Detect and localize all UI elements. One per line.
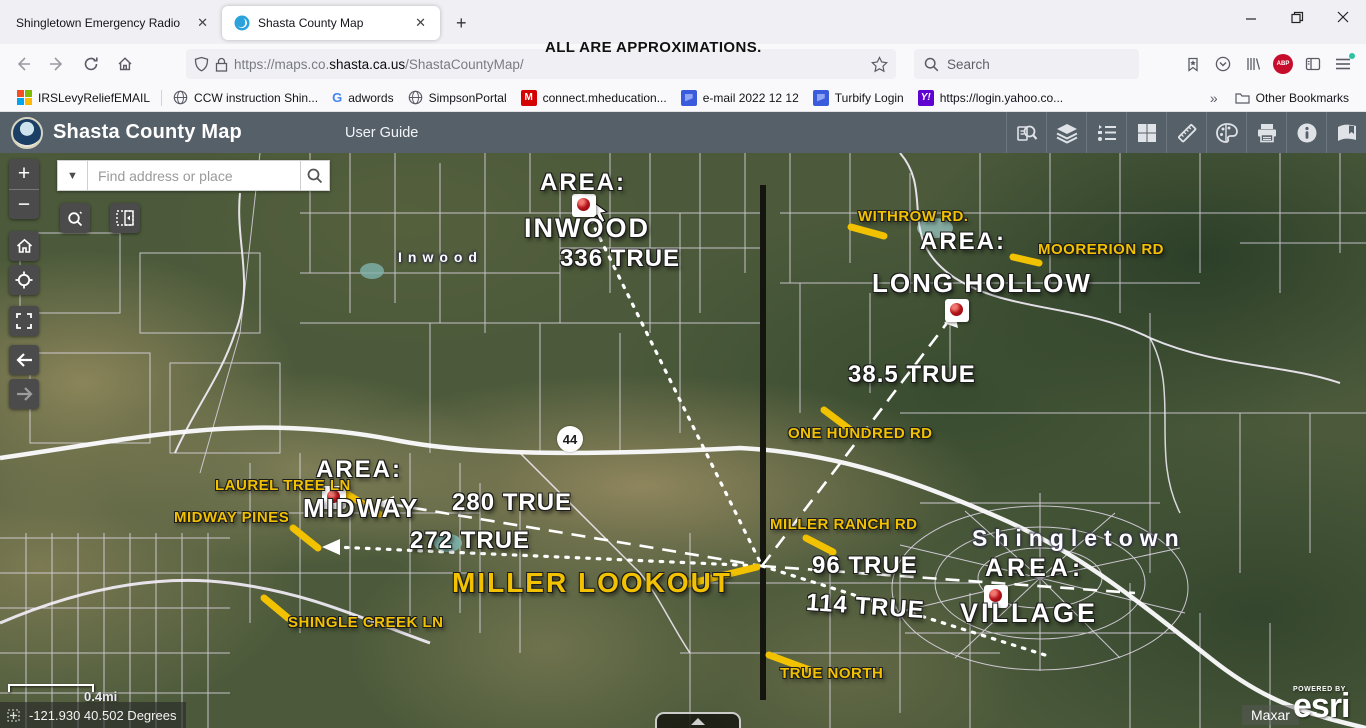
bookmarks-overflow-chevron[interactable]: » [1210,90,1218,106]
bookmark-item[interactable]: e-mail 2022 12 12 [674,87,806,109]
bookmark-item[interactable]: CCW instruction Shin... [166,87,325,108]
pocket-icon[interactable] [1208,49,1238,79]
zoom-control: + − [9,159,39,219]
app-header: Shasta County Map User Guide [0,112,1366,153]
navbar-right-icons: ABP [1178,49,1358,79]
bookmark-item[interactable]: IRSLevyReliefEMAIL [10,87,157,108]
url-bar[interactable]: https://maps.co.shasta.ca.us/ShastaCount… [186,49,896,79]
print-icon[interactable] [1246,112,1286,153]
bearing-lines-layer [0,153,1366,728]
find-address-input[interactable] [88,160,300,191]
coordinates-readout: -121.930 40.502 Degrees [29,708,176,723]
globe-icon [408,90,423,105]
place-label-inwood: Inwood [398,249,483,265]
draw-icon[interactable] [1206,112,1246,153]
geocoder-widget: ▼ [57,160,330,191]
sidebars-icon[interactable] [1298,49,1328,79]
crosshair-icon[interactable] [6,708,21,723]
geocoder-source-dropdown[interactable]: ▼ [57,160,88,191]
window-close-button[interactable] [1320,0,1366,34]
fullscreen-button[interactable] [9,306,39,336]
scale-bar [8,684,94,692]
zoom-in-button[interactable]: + [9,159,39,189]
google-icon: G [332,90,342,105]
tab-shasta-county-map[interactable]: Shasta County Map ✕ [222,6,440,40]
bearing-272-arrowhead [322,539,340,555]
app-toolbar [1006,112,1366,153]
folder-icon [1235,91,1250,104]
bookmarks-bar: IRSLevyReliefEMAIL CCW instruction Shin.… [0,84,1366,112]
shasta-county-seal-logo [11,117,43,149]
update-dot [1349,53,1355,59]
annotation-withrow-rd: WITHROW RD. [858,208,968,225]
query-search-icon[interactable] [1006,112,1046,153]
bookmarks-icon[interactable] [1326,112,1366,153]
url-text: https://maps.co.shasta.ca.us/ShastaCount… [234,57,865,72]
map-pin-long-hollow[interactable] [945,299,969,322]
reload-button[interactable] [76,49,106,79]
window-controls [1228,0,1366,34]
next-extent-button[interactable] [9,379,39,409]
user-guide-link[interactable]: User Guide [345,125,418,141]
bookmark-item[interactable]: G adwords [325,87,400,108]
home-extent-button[interactable] [9,231,39,261]
library-icon[interactable] [1238,49,1268,79]
chevron-up-icon [691,718,705,725]
annotation-miller-ranch-rd: MILLER RANCH RD [770,516,918,533]
annotation-midway: MIDWAY [303,493,420,524]
annotation-area-inwood-header: AREA: [540,169,626,197]
new-tab-button[interactable]: + [446,11,477,36]
annotation-one-hundred-rd: ONE HUNDRED RD [788,425,933,442]
turbify-icon [681,90,697,106]
measure-icon[interactable] [1166,112,1206,153]
annotation-area-village-header: AREA: [985,554,1084,583]
back-button[interactable] [8,49,38,79]
layers-icon[interactable] [1046,112,1086,153]
info-icon[interactable] [1286,112,1326,153]
menu-icon[interactable] [1328,49,1358,79]
browser-search-box[interactable]: Search [914,49,1139,79]
tab-shingletown-emergency-radio[interactable]: Shingletown Emergency Radio ✕ [4,6,222,40]
previous-extent-button[interactable] [9,345,39,375]
annotation-bearing-280: 280 TRUE [452,489,572,517]
bookmark-star-icon[interactable] [871,56,888,73]
annotation-true-north: TRUE NORTH [780,665,883,682]
account-bookmark-icon[interactable] [1178,49,1208,79]
maxar-attribution: Maxar [1242,705,1299,725]
lock-icon[interactable] [215,57,228,72]
annotation-miller-lookout: MILLER LOOKOUT [452,567,732,599]
annotation-moorerion-rd: MOORERION RD [1038,241,1164,258]
home-button[interactable] [110,49,140,79]
annotation-bearing-336: 336 TRUE [560,245,680,273]
map-canvas[interactable]: Inwood Shingletown 44 AREA: INWOOD 336 T… [0,153,1366,728]
approximations-note: ALL ARE APPROXIMATIONS. [545,39,762,56]
browser-titlebar: Shingletown Emergency Radio ✕ Shasta Cou… [0,0,1366,44]
tab-strip: Shingletown Emergency Radio ✕ Shasta Cou… [4,6,477,40]
tab-title: Shasta County Map [258,16,403,30]
bookmark-item[interactable]: M connect.mheducation... [514,87,674,109]
esri-logo: POWERED BY esri [1293,686,1350,720]
turbify-icon [813,90,829,106]
annotation-bearing-272: 272 TRUE [410,527,530,555]
tab-close-icon[interactable]: ✕ [411,13,430,33]
globe-icon [173,90,188,105]
bookmark-item[interactable]: Turbify Login [806,87,911,109]
microsoft-icon [17,90,32,105]
annotation-long-hollow: LONG HOLLOW [872,268,1092,299]
search-icon [924,57,939,72]
annotation-midway-pines: MIDWAY PINES [174,509,289,526]
my-location-button[interactable] [9,265,39,295]
annotation-laurel-tree-ln: LAUREL TREE LN [215,477,351,494]
select-tool-button[interactable] [60,203,90,233]
highway-44-shield: 44 [557,426,583,452]
swipe-tool-button[interactable] [110,203,140,233]
window-minimize-button[interactable] [1228,0,1274,34]
annotation-bearing-385: 38.5 TRUE [848,361,976,389]
bookmark-item[interactable]: Y! https://login.yahoo.co... [911,87,1070,109]
forward-button[interactable] [42,49,72,79]
tab-favicon-icon [234,15,250,31]
attribute-table-toggle[interactable] [655,712,741,728]
annotation-inwood: INWOOD [524,213,650,244]
annotation-shingle-creek-ln: SHINGLE CREEK LN [288,614,444,631]
geocoder-search-button[interactable] [300,160,330,191]
tab-close-icon[interactable]: ✕ [193,13,212,33]
coordinates-bar: -121.930 40.502 Degrees [0,702,186,728]
search-placeholder: Search [947,57,990,72]
yahoo-icon: Y! [918,90,934,106]
zoom-out-button[interactable]: − [9,189,39,219]
tab-title: Shingletown Emergency Radio [16,16,185,30]
annotation-area-long-hollow-header: AREA: [920,228,1006,256]
bookmark-item[interactable]: SimpsonPortal [401,87,514,108]
app-title: Shasta County Map [53,121,242,144]
annotation-village: VILLAGE [960,598,1098,629]
place-label-shingletown: Shingletown [972,525,1186,552]
basemap-gallery-icon[interactable] [1126,112,1166,153]
adblock-icon[interactable]: ABP [1268,49,1298,79]
tracking-shield-icon[interactable] [194,56,209,72]
window-restore-button[interactable] [1274,0,1320,34]
mheducation-icon: M [521,90,537,106]
legend-icon[interactable] [1086,112,1126,153]
other-bookmarks-folder[interactable]: Other Bookmarks [1228,88,1356,108]
annotation-bearing-96: 96 TRUE [812,552,918,580]
